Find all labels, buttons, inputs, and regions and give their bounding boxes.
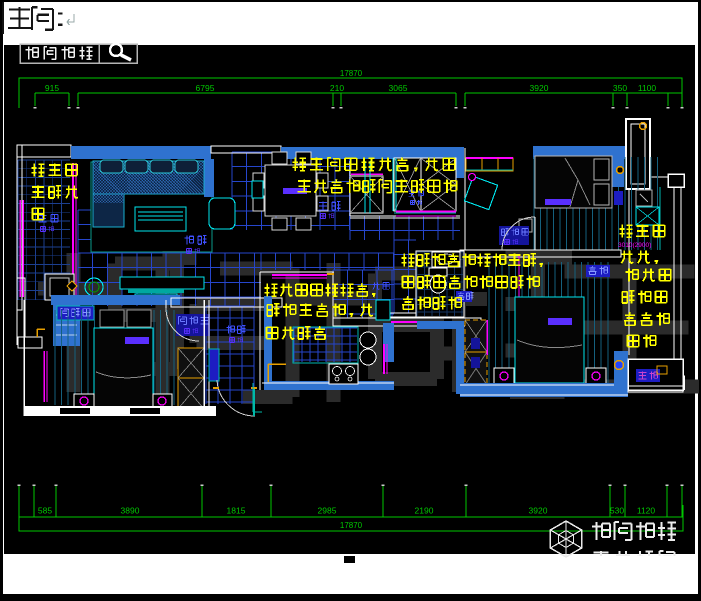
svg-text:17870: 17870 — [340, 521, 363, 530]
svg-text:210: 210 — [330, 83, 344, 93]
svg-text:915: 915 — [45, 83, 59, 93]
svg-text:530: 530 — [610, 506, 624, 516]
svg-text:3010(2900): 3010(2900) — [618, 242, 651, 249]
svg-text:1100: 1100 — [638, 83, 657, 93]
svg-text:2985: 2985 — [318, 506, 337, 516]
svg-text:3890: 3890 — [121, 506, 140, 516]
svg-text:3920: 3920 — [530, 83, 549, 93]
svg-text:17870: 17870 — [340, 69, 363, 78]
svg-text:3920: 3920 — [529, 506, 548, 516]
svg-text:1120: 1120 — [637, 506, 656, 516]
svg-text:585: 585 — [38, 506, 52, 516]
svg-text:3065: 3065 — [389, 83, 408, 93]
svg-text:6795: 6795 — [196, 83, 215, 93]
svg-text:1815: 1815 — [227, 506, 246, 516]
svg-text:2190: 2190 — [415, 506, 434, 516]
svg-text:350: 350 — [613, 83, 627, 93]
